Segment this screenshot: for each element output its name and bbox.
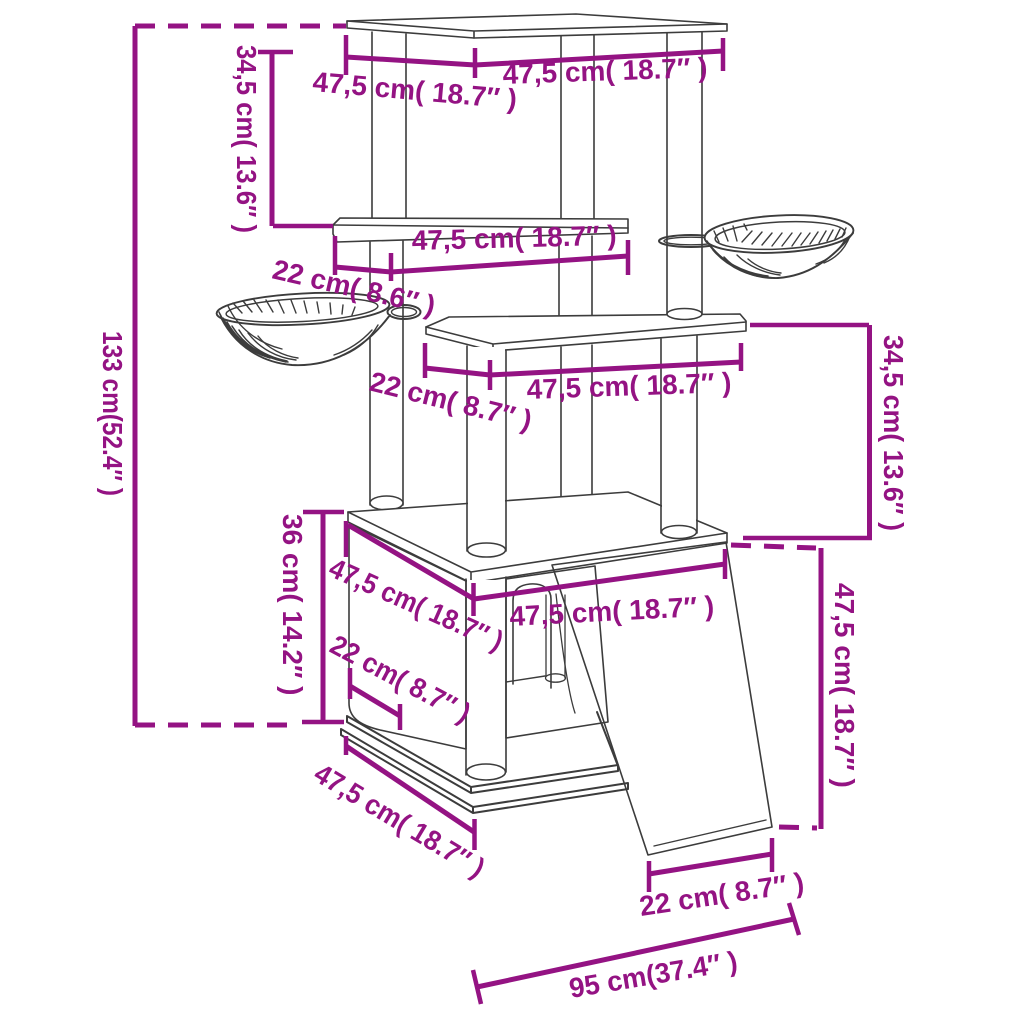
svg-text:34,5 cm( 13.6″ ): 34,5 cm( 13.6″ ): [231, 45, 262, 233]
svg-text:47,5 cm( 18.7″ ): 47,5 cm( 18.7″ ): [411, 220, 617, 256]
svg-text:34,5 cm( 13.6″ ): 34,5 cm( 13.6″ ): [878, 335, 909, 531]
svg-text:36 cm( 14.2″ ): 36 cm( 14.2″ ): [277, 514, 308, 696]
svg-text:47,5 cm( 18.7″ ): 47,5 cm( 18.7″ ): [829, 583, 860, 788]
svg-text:133 cm(52.4″ ): 133 cm(52.4″ ): [97, 331, 128, 496]
